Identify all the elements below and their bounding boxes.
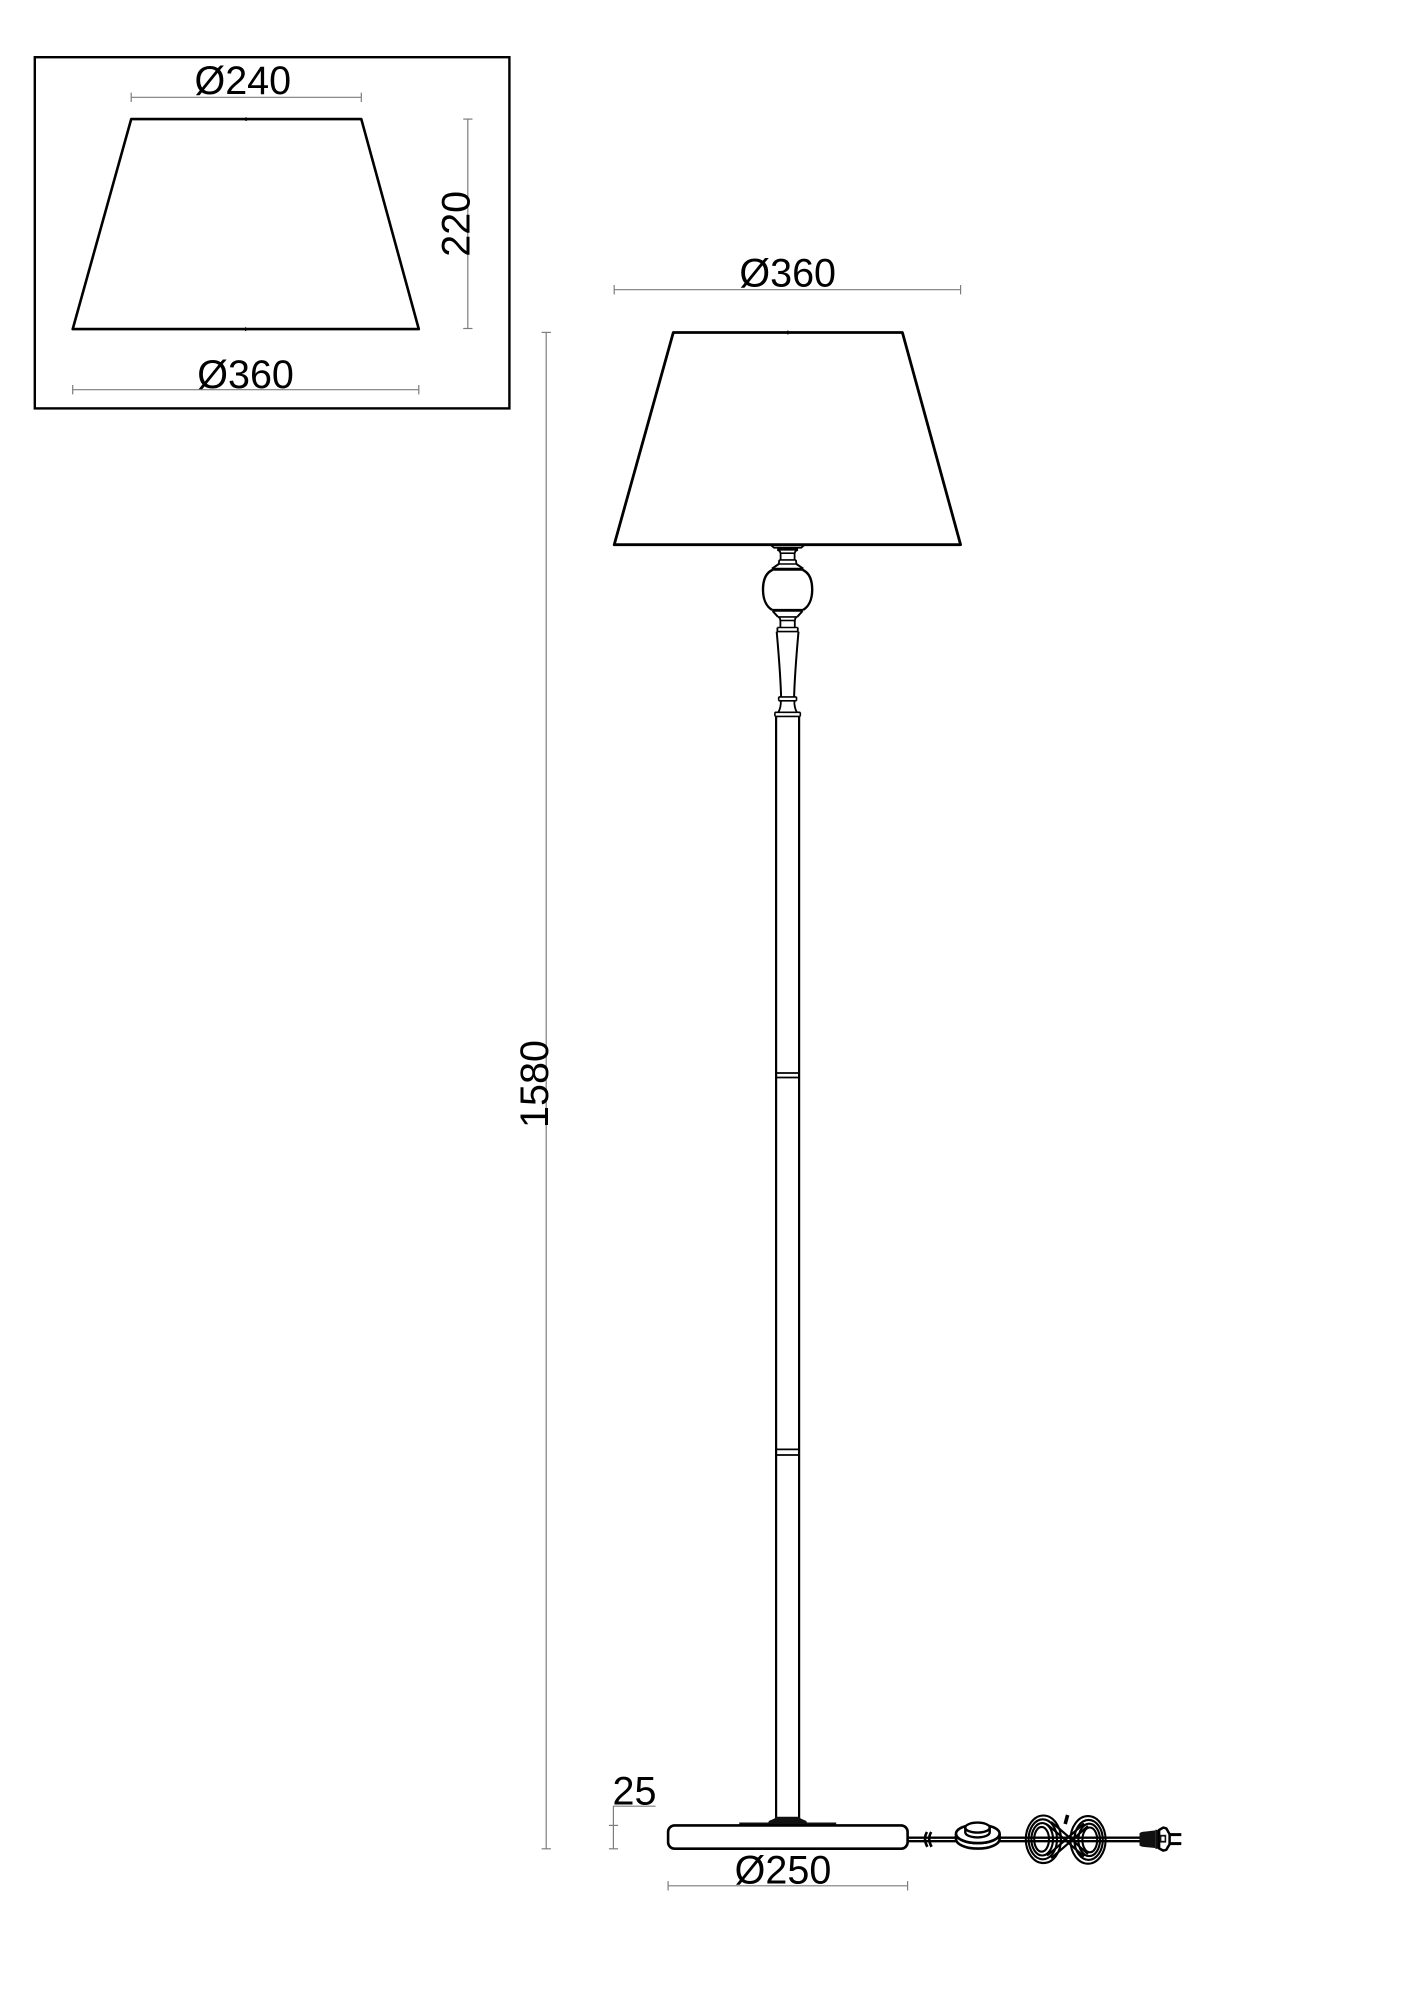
svg-text:220: 220 <box>434 191 478 257</box>
svg-text:Ø360: Ø360 <box>739 252 836 296</box>
svg-text:Ø250: Ø250 <box>735 1849 832 1893</box>
svg-text:1580: 1580 <box>513 1040 557 1128</box>
svg-text:Ø240: Ø240 <box>194 59 291 103</box>
svg-text:25: 25 <box>613 1769 657 1813</box>
svg-text:Ø360: Ø360 <box>197 353 294 397</box>
